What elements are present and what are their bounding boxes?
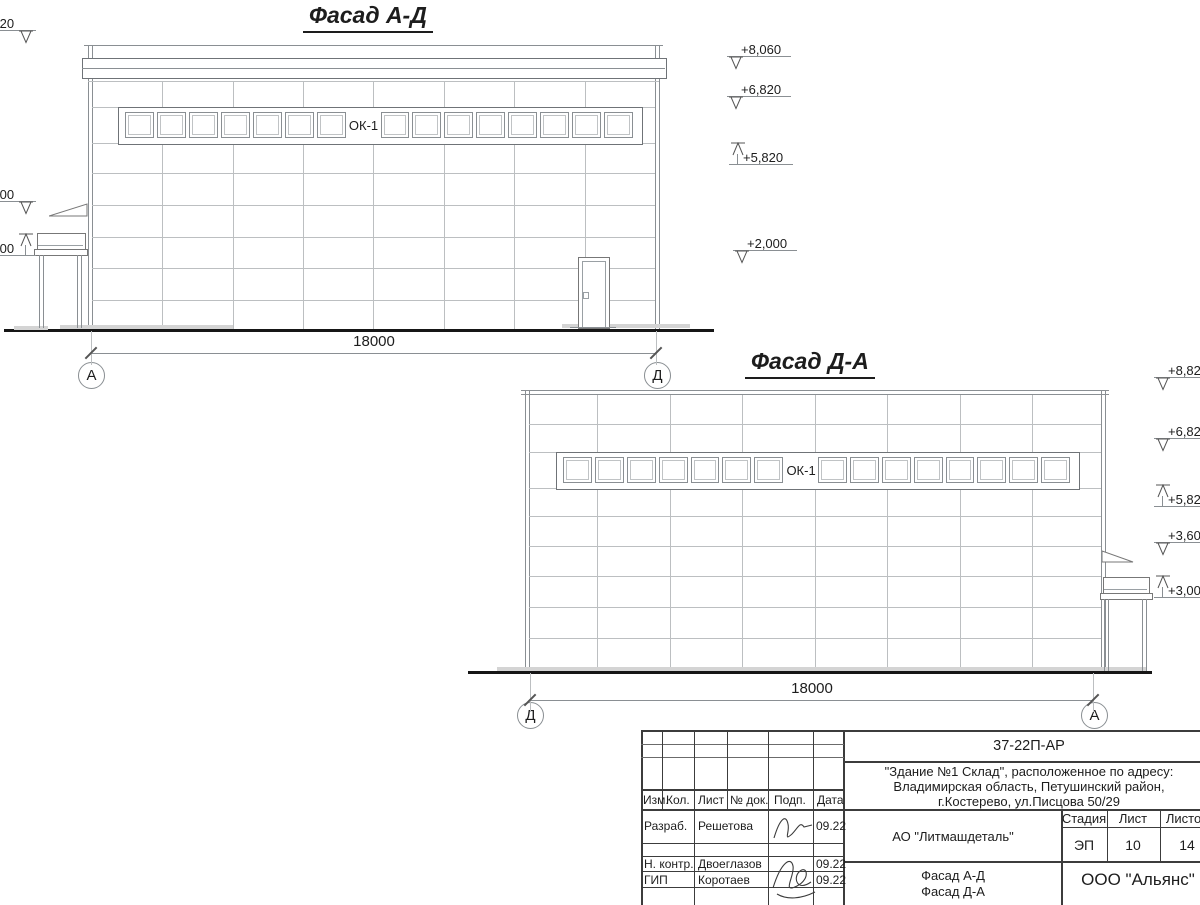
elevation-mark: +2,000 <box>733 237 797 263</box>
annex-beam-line <box>1104 589 1147 590</box>
annex-wall-line <box>77 255 78 328</box>
elevation-value: +5,820 <box>1168 493 1200 506</box>
project-line-3: г.Костерево, ул.Писцова 50/29 <box>938 794 1120 809</box>
wall-edge-line <box>88 45 89 330</box>
down-arrow-icon <box>728 56 744 70</box>
rev-col-dok: № док. <box>730 793 768 807</box>
company-name: ООО "Альянс" <box>1081 870 1195 890</box>
wall-edge-line <box>525 390 526 672</box>
sheet-content-line-1: Фасад А-Д <box>921 868 985 883</box>
window-pane <box>221 112 250 138</box>
annex-wall-line <box>1104 599 1105 671</box>
row-gip-role: ГИП <box>644 873 668 887</box>
extension-line <box>91 331 92 365</box>
row-gip-date: 09.22 <box>816 873 846 887</box>
window-pane <box>285 112 314 138</box>
canopy-wedge <box>1102 549 1136 565</box>
window-type-label: ОК-1 <box>343 108 385 142</box>
window-glass <box>607 115 630 135</box>
row-razrab-role: Разраб. <box>644 819 687 833</box>
window-glass <box>598 460 621 480</box>
window-glass <box>725 460 748 480</box>
elevation-value: +2,000 <box>747 237 787 250</box>
rev-col-kol: Кол. <box>666 793 690 807</box>
canopy-wedge <box>49 202 89 218</box>
window-glass <box>479 115 502 135</box>
elevation-value: +5,820 <box>743 151 783 164</box>
annex-wall-line <box>1146 599 1147 671</box>
window-pane <box>508 112 537 138</box>
rev-col-data: Дата <box>817 793 844 807</box>
window-pane <box>381 112 410 138</box>
client-name: АО "Литмашдеталь" <box>892 829 1013 844</box>
window-pane <box>125 112 154 138</box>
window-glass <box>949 460 972 480</box>
bay-column-line <box>815 395 816 671</box>
axis-bubble-d: Д <box>644 362 671 389</box>
bay-column-line <box>960 395 961 671</box>
window-pane <box>627 457 656 483</box>
window-pane <box>722 457 751 483</box>
elevation-mark: +6,820 <box>1154 425 1200 451</box>
wall-edge-line <box>529 390 530 672</box>
window-glass <box>917 460 940 480</box>
window-glass <box>630 460 653 480</box>
up-arrow-icon <box>1155 484 1171 498</box>
bay-column-line <box>670 395 671 671</box>
window-glass <box>1012 460 1035 480</box>
axis-bubble-a: А <box>78 362 105 389</box>
wall-edge-line <box>655 45 656 330</box>
elevation-value: +3,000 <box>1168 584 1200 597</box>
elevation-mark: +8,820 <box>0 17 36 43</box>
bay-column-line <box>742 395 743 671</box>
annex-wall-line <box>81 255 82 328</box>
total-sheets-label: Листов <box>1166 811 1200 826</box>
facade-da-title: Фасад Д-А <box>745 348 875 379</box>
extension-line <box>530 673 531 712</box>
elevation-mark: +8,820 <box>1154 364 1200 390</box>
stage-label: Стадия <box>1062 811 1106 826</box>
window-pane <box>946 457 975 483</box>
down-arrow-icon <box>1155 438 1171 452</box>
elevation-mark: +3,600 <box>1154 529 1200 555</box>
window-pane <box>563 457 592 483</box>
extension-line <box>656 331 657 365</box>
up-arrow-icon <box>18 233 34 247</box>
window-pane <box>189 112 218 138</box>
window-pane <box>476 112 505 138</box>
elevation-mark: +8,060 <box>727 43 791 69</box>
doc-number: 37-22П-АР <box>993 738 1065 754</box>
elevation-value: +6,820 <box>741 83 781 96</box>
ground-line <box>4 329 714 332</box>
window-glass <box>320 115 343 135</box>
window-glass <box>415 115 438 135</box>
facade-da-dimension: 18000 <box>791 680 833 697</box>
window-glass <box>821 460 844 480</box>
window-pane <box>659 457 688 483</box>
window-type-label: ОК-1 <box>780 453 822 487</box>
elevation-mark: +5,820 <box>1154 484 1200 510</box>
window-pane <box>914 457 943 483</box>
elevation-value: +6,820 <box>1168 425 1200 438</box>
row-nkontr-role: Н. контр. <box>644 857 694 871</box>
window-pane <box>977 457 1006 483</box>
axis-bubble-a2: А <box>1081 702 1108 729</box>
window-pane <box>595 457 624 483</box>
annex-wall-line <box>39 255 40 328</box>
door-threshold-line <box>570 327 616 328</box>
ribbon-window-band: ОК-1 <box>556 452 1080 490</box>
rev-col-izm: Изм. <box>643 793 669 807</box>
elevation-value: +3,600 <box>1168 529 1200 542</box>
wall-edge-line <box>659 45 660 330</box>
up-arrow-icon <box>730 142 746 156</box>
row-gip-name: Коротаев <box>698 873 750 887</box>
window-glass <box>566 460 589 480</box>
window-glass <box>224 115 247 135</box>
window-pane <box>157 112 186 138</box>
elevation-mark: +6,820 <box>727 83 791 109</box>
down-arrow-icon <box>1155 542 1171 556</box>
window-glass <box>384 115 407 135</box>
elevation-shelf-line <box>729 164 793 165</box>
window-glass <box>192 115 215 135</box>
elevation-mark: +5,820 <box>729 142 793 168</box>
dimension-line <box>91 353 656 354</box>
window-pane <box>1009 457 1038 483</box>
elevation-shelf-line <box>1154 597 1200 598</box>
up-arrow-icon <box>1155 575 1171 589</box>
elevation-value: +8,820 <box>1168 364 1200 377</box>
elevation-value: +3,600 <box>0 188 14 201</box>
window-pane <box>882 457 911 483</box>
row-nkontr-date: 09.22 <box>816 857 846 871</box>
down-arrow-icon <box>728 96 744 110</box>
window-pane <box>691 457 720 483</box>
signature-razrab <box>770 812 815 846</box>
annex-beam-line <box>38 245 83 246</box>
dimension-line <box>530 700 1093 701</box>
pavement-apron <box>497 667 1147 671</box>
rev-col-podp: Подп. <box>774 793 806 807</box>
rev-col-list: Лист <box>698 793 724 807</box>
elevation-shelf-line <box>1154 506 1200 507</box>
elevation-value: +8,820 <box>0 17 14 30</box>
wall-edge-line <box>1105 390 1106 672</box>
title-block: Изм. Кол. Лист № док. Подп. Дата Разраб.… <box>641 730 1200 905</box>
row-razrab-date: 09.22 <box>816 819 846 833</box>
entrance-door <box>578 257 610 329</box>
elevation-value: +8,060 <box>741 43 781 56</box>
annex-wall-line <box>1108 599 1109 671</box>
sheet-value: 10 <box>1125 837 1141 853</box>
window-pane <box>412 112 441 138</box>
bay-column-line <box>597 395 598 671</box>
window-glass <box>1044 460 1067 480</box>
project-line-1: "Здание №1 Склад", расположенное по адре… <box>885 764 1174 779</box>
window-glass <box>288 115 311 135</box>
annex-wall-line <box>1142 599 1143 671</box>
total-sheets-value: 14 <box>1179 837 1195 853</box>
window-pane <box>317 112 346 138</box>
elevation-mark: +3,000 <box>0 233 36 259</box>
window-pane <box>850 457 879 483</box>
ribbon-window-band: ОК-1 <box>118 107 643 145</box>
elevation-value: +3,000 <box>0 242 14 255</box>
fascia-band <box>82 58 667 79</box>
architectural-drawing-sheet: { "drawing": { "facade_ad": { "title": "… <box>0 0 1200 900</box>
down-arrow-icon <box>734 250 750 264</box>
elevation-mark: +3,000 <box>1154 575 1200 601</box>
facade-ad-title: Фасад А-Д <box>303 2 433 33</box>
window-pane <box>444 112 473 138</box>
bay-column-line <box>1032 395 1033 671</box>
facade-ad-dimension: 18000 <box>353 333 395 350</box>
parapet-line <box>521 390 1109 391</box>
window-glass <box>575 115 598 135</box>
window-glass <box>662 460 685 480</box>
window-glass <box>160 115 183 135</box>
wall-edge-line <box>92 45 93 330</box>
window-pane <box>754 457 783 483</box>
down-arrow-icon <box>18 201 34 215</box>
annex-wall-line <box>43 255 44 328</box>
wall-edge-line <box>1101 390 1102 672</box>
window-glass <box>256 115 279 135</box>
row-razrab-name: Решетова <box>698 819 753 833</box>
down-arrow-icon <box>18 30 34 44</box>
door-handle-icon <box>583 292 589 299</box>
sheet-label: Лист <box>1119 811 1147 826</box>
window-pane <box>818 457 847 483</box>
window-pane <box>572 112 601 138</box>
elevation-mark: +3,600 <box>0 188 36 214</box>
down-arrow-icon <box>1155 377 1171 391</box>
window-glass <box>885 460 908 480</box>
window-glass <box>447 115 470 135</box>
window-glass <box>694 460 717 480</box>
bay-column-line <box>887 395 888 671</box>
window-pane <box>540 112 569 138</box>
signature-gip <box>767 852 819 904</box>
window-pane <box>1041 457 1070 483</box>
project-line-2: Владимирская область, Петушинский район, <box>893 779 1164 794</box>
window-glass <box>853 460 876 480</box>
sheet-content-line-2: Фасад Д-А <box>921 884 985 899</box>
window-glass <box>511 115 534 135</box>
window-pane <box>604 112 633 138</box>
parapet-line <box>84 45 663 46</box>
window-pane <box>253 112 282 138</box>
window-glass <box>128 115 151 135</box>
extension-line <box>1093 673 1094 712</box>
pavement-apron <box>60 325 233 329</box>
window-glass <box>757 460 780 480</box>
elevation-shelf-line <box>0 255 36 256</box>
row-nkontr-name: Двоеглазов <box>698 857 762 871</box>
window-glass <box>543 115 566 135</box>
ground-line <box>468 671 1152 674</box>
fascia-mid-line <box>82 68 665 69</box>
window-glass <box>980 460 1003 480</box>
drawing-canvas: Фасад А-Д 18000 А Д Фасад Д-А 18000 Д А <box>0 0 1200 900</box>
stage-value: ЭП <box>1074 837 1094 853</box>
